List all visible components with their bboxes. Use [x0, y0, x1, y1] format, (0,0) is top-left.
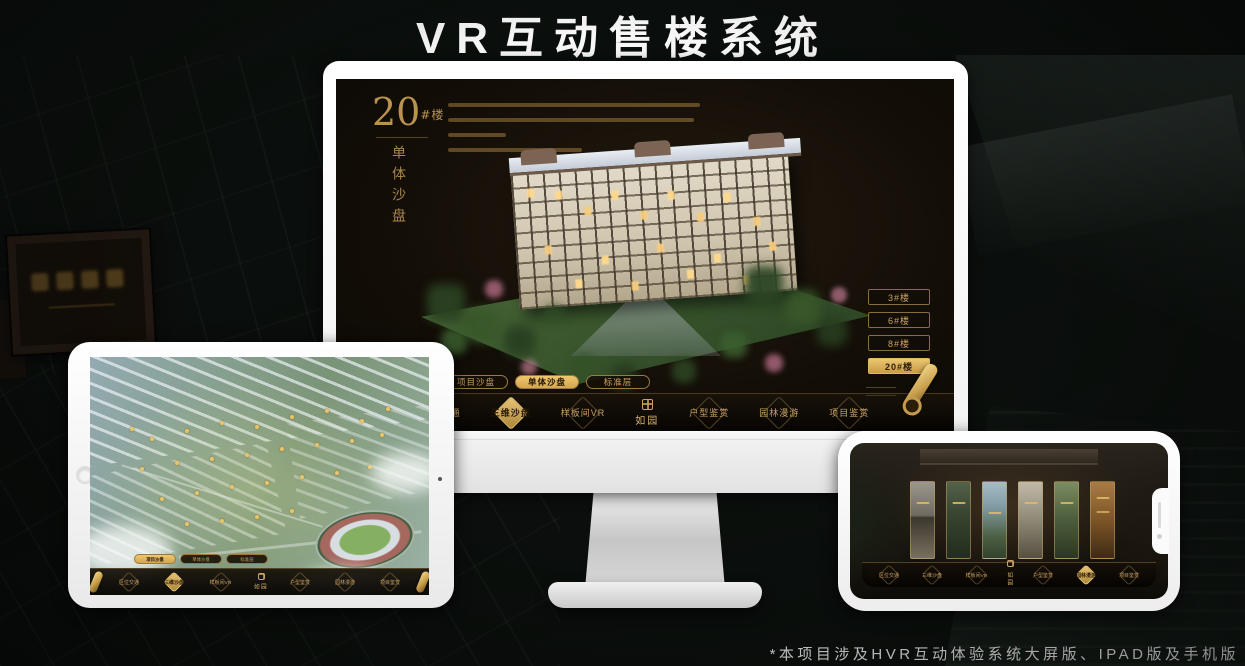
nav-item-model-room-vr[interactable]: 样板间VR	[561, 394, 606, 431]
seal-icon	[258, 573, 265, 580]
interior-ceiling-beam	[920, 449, 1098, 465]
nav-item-model-room-vr[interactable]: 样板间VR	[203, 569, 238, 595]
brand-logo[interactable]: 如园	[251, 573, 271, 592]
nav-item-label: 三维沙盘	[923, 572, 943, 579]
ipad-device: 项目沙盘 单体沙盘 标准层 区位交通 三维沙盘 样板间VR 如园 户型鉴赏 园林…	[68, 342, 454, 608]
subtab-label: 项目沙盘	[146, 556, 164, 562]
scroll-deco-lines	[866, 387, 896, 388]
section-subtitle-vertical: 单体沙盘	[388, 145, 408, 229]
subtab-project-sandbox[interactable]: 项目沙盘	[134, 554, 176, 564]
nav-item-label: 样板间VR	[561, 406, 606, 419]
nav-item-label: 样板间VR	[966, 572, 988, 579]
gallery-card[interactable]	[1090, 481, 1115, 559]
nav-item-3d-sandbox[interactable]: 三维沙盘	[158, 569, 190, 595]
brand-logo-text: 如园	[1007, 571, 1014, 586]
footnote-text: *本项目涉及HVR互动体验系统大屏版、IPAD版及手机版	[770, 643, 1239, 664]
nav-item-floorplans[interactable]: 户型鉴赏	[1027, 563, 1059, 587]
background-map-texture	[0, 55, 340, 375]
floor-button-3[interactable]: 3#楼	[868, 289, 930, 305]
gallery-card[interactable]	[1018, 481, 1043, 559]
nav-item-label: 园林漫游	[1076, 572, 1096, 579]
nav-item-label: 区位交通	[880, 572, 900, 579]
nav-item-label: 样板间VR	[210, 579, 232, 586]
ipad-app-screen: 项目沙盘 单体沙盘 标准层 区位交通 三维沙盘 样板间VR 如园 户型鉴赏 园林…	[90, 357, 429, 595]
nav-item-project-gallery[interactable]: 项目鉴赏	[1113, 563, 1145, 587]
nav-item-project-gallery[interactable]: 项目鉴赏	[374, 569, 406, 595]
nav-item-label: 户型鉴赏	[689, 406, 729, 419]
nav-item-label: 项目鉴赏	[380, 579, 400, 586]
tablet-navbar: 区位交通 三维沙盘 样板间VR 如园 户型鉴赏 园林漫游 项目鉴赏	[90, 568, 429, 595]
scene-gallery	[910, 481, 1115, 559]
monitor-stand-foot	[548, 582, 762, 608]
scroll-icon[interactable]	[90, 570, 104, 593]
nav-item-project-gallery[interactable]: 项目鉴赏	[829, 394, 869, 431]
subtab-label: 标准层	[240, 556, 253, 562]
front-camera	[1157, 534, 1162, 539]
sandbox-subtabs: 项目沙盘 单体沙盘 标准层	[444, 375, 650, 389]
phone-navbar: 区位交通 三维沙盘 样板间VR 如园 户型鉴赏 园林漫游 项目鉴赏	[862, 562, 1156, 587]
background-band-top-right	[957, 94, 1245, 255]
speaker-slit	[1158, 502, 1161, 528]
page-canvas: VR互动售楼系统 *本项目涉及HVR互动体验系统大屏版、IPAD版及手机版 20…	[0, 0, 1245, 666]
page-title: VR互动售楼系统	[0, 2, 1245, 66]
model-landscaping	[431, 252, 437, 258]
floor-button-8[interactable]: 8#楼	[868, 335, 930, 351]
floor-button-6[interactable]: 6#楼	[868, 312, 930, 328]
background-award-plaque	[7, 229, 155, 354]
nav-item-label: 户型鉴赏	[290, 579, 310, 586]
nav-item-transport[interactable]: 区位交通	[113, 569, 145, 595]
phone-app-screen: 区位交通 三维沙盘 样板间VR 如园 户型鉴赏 园林漫游 项目鉴赏	[850, 443, 1168, 599]
gallery-card[interactable]	[946, 481, 971, 559]
gallery-card[interactable]	[910, 481, 935, 559]
nav-item-label: 园林漫游	[759, 406, 799, 419]
building-number-suffix: #楼	[420, 108, 444, 122]
nav-item-label: 三维沙盘	[164, 579, 184, 586]
nav-item-garden-tour[interactable]: 园林漫游	[759, 394, 799, 431]
nav-item-floorplans[interactable]: 户型鉴赏	[689, 394, 729, 431]
seal-icon	[1007, 560, 1014, 567]
phone-notch	[1152, 488, 1169, 554]
brand-logo-text: 如园	[635, 412, 659, 427]
camera-dot	[438, 477, 442, 481]
monitor-stand-neck	[585, 493, 725, 589]
nav-item-3d-sandbox[interactable]: 三维沙盘	[916, 563, 948, 587]
nav-item-model-room-vr[interactable]: 样板间VR	[959, 563, 994, 587]
seal-icon	[642, 399, 653, 410]
building-3d-model[interactable]	[421, 134, 871, 384]
tablet-sandbox-subtabs: 项目沙盘 单体沙盘 标准层	[134, 554, 268, 564]
scroll-menu-toggle[interactable]	[892, 361, 952, 419]
background-photo-top-right	[955, 55, 1245, 345]
nav-item-label: 项目鉴赏	[829, 406, 869, 419]
plaque-subline	[49, 303, 115, 308]
subtab-single-sandbox[interactable]: 单体沙盘	[515, 375, 579, 389]
phone-device: 区位交通 三维沙盘 样板间VR 如园 户型鉴赏 园林漫游 项目鉴赏	[838, 431, 1180, 611]
model-facade	[511, 154, 798, 309]
subtab-standard-floor[interactable]: 标准层	[586, 375, 650, 389]
gallery-card[interactable]	[1054, 481, 1079, 559]
subtab-single-sandbox[interactable]: 单体沙盘	[180, 554, 222, 564]
building-number-badges	[130, 427, 134, 431]
nav-item-garden-tour[interactable]: 园林漫游	[1070, 563, 1102, 587]
nav-item-label: 三维沙盘	[491, 406, 531, 419]
scroll-icon[interactable]	[415, 570, 429, 593]
background-frame-fragment	[0, 299, 26, 378]
plaque-calligraphy	[31, 269, 124, 292]
nav-item-floorplans[interactable]: 户型鉴赏	[284, 569, 316, 595]
subtab-label: 单体沙盘	[192, 556, 210, 562]
nav-item-transport[interactable]: 区位交通	[873, 563, 905, 587]
building-number: 20	[372, 90, 420, 134]
nav-item-label: 园林漫游	[335, 579, 355, 586]
nav-item-garden-tour[interactable]: 园林漫游	[329, 569, 361, 595]
building-number-heading: 20#楼	[372, 93, 444, 131]
nav-item-label: 项目鉴赏	[1119, 572, 1139, 579]
nav-item-label: 户型鉴赏	[1033, 572, 1053, 579]
model-lit-windows	[527, 188, 535, 197]
brand-logo-text: 如园	[254, 582, 268, 590]
brand-logo[interactable]: 如园	[1006, 560, 1016, 590]
gallery-card[interactable]	[982, 481, 1007, 559]
brand-logo[interactable]: 如园	[635, 399, 659, 427]
nav-item-label: 区位交通	[119, 579, 139, 586]
nav-item-3d-sandbox[interactable]: 三维沙盘	[491, 394, 531, 431]
subtab-standard-floor[interactable]: 标准层	[226, 554, 268, 564]
scroll-icon	[901, 362, 940, 413]
